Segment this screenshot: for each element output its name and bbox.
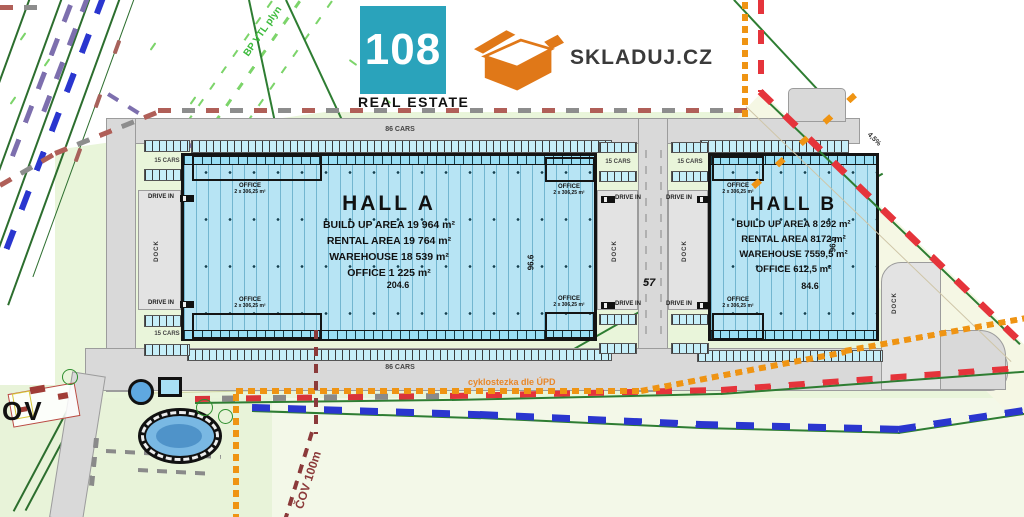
hall-b-width-dim: 84.6	[780, 281, 840, 291]
dock-label: DOCK	[892, 292, 898, 314]
truck-icon	[180, 195, 194, 202]
skladuj-box-icon	[474, 22, 564, 96]
hall-a-office-se	[545, 312, 595, 339]
parking-small	[671, 171, 709, 182]
logo-108-name: REAL ESTATE	[358, 94, 469, 110]
parking-row-north-a	[191, 140, 612, 153]
veg-dash	[20, 32, 27, 41]
office-area: 2 x 306,25 m²	[200, 304, 300, 310]
parking-small	[599, 314, 637, 325]
dock-label: DOCK	[682, 240, 688, 262]
parking-count-15: 15 CARS	[598, 159, 638, 165]
parking-small	[671, 343, 709, 354]
drive-in-label: DRIVE IN	[666, 195, 692, 201]
village-label: OV	[2, 396, 44, 427]
pond-water-deep	[156, 424, 202, 448]
truck-icon	[601, 302, 615, 309]
road-centerline	[660, 150, 662, 340]
logo-108-number: 108	[365, 25, 441, 75]
office-area: 2 x 306,25 m²	[533, 303, 605, 309]
skladuj-logo-text: SKLADUJ.CZ	[570, 46, 713, 70]
logo-108-square: 108	[360, 6, 446, 94]
hall-a-office-sw	[192, 313, 322, 339]
hall-b-office-nw	[712, 156, 764, 181]
tree-symbol	[62, 369, 78, 385]
parking-count-15: 15 CARS	[145, 158, 189, 164]
site-plan: OFFICE 2 x 306,25 m² OFFICE 2 x 306,25 m…	[0, 0, 1024, 517]
hall-a-depth-dim: 96.6	[527, 248, 536, 278]
office-label: OFFICE 2 x 306,25 m²	[533, 296, 605, 309]
hall-b-warehouse: WAREHOUSE 7559,5 m²	[708, 249, 879, 260]
hall-b-title: HALL B	[708, 194, 879, 216]
truck-icon	[180, 301, 194, 308]
water-basin-square	[158, 377, 182, 397]
parking-small	[599, 171, 637, 182]
hall-b-office-sw	[712, 313, 764, 340]
parking-count-south: 86 CARS	[370, 364, 430, 371]
hall-b-depth-dim: 96.6	[829, 230, 838, 260]
veg-dash	[10, 96, 17, 105]
hall-a-office-nw	[192, 155, 322, 181]
parking-small	[144, 344, 190, 356]
hall-a-rental: RENTAL AREA 19 764 m²	[181, 235, 597, 247]
parking-small	[671, 142, 709, 153]
office-area: 2 x 306,25 m²	[707, 304, 769, 310]
road-centerline	[645, 150, 647, 340]
hall-a-office-ne	[545, 157, 595, 182]
hall-a-title: HALL A	[181, 192, 597, 216]
truck-icon	[697, 302, 711, 309]
hall-b-office: OFFICE 612,5 m²	[708, 264, 879, 275]
drive-in-label: DRIVE IN	[148, 194, 174, 200]
utility-orange	[236, 388, 642, 394]
parking-small	[599, 343, 637, 354]
hall-a-width-dim: 204.6	[368, 280, 428, 290]
parking-small	[671, 314, 709, 325]
drive-in-label: DRIVE IN	[666, 301, 692, 307]
hall-a-buildup: BUILD UP AREA 19 964 m²	[181, 219, 597, 231]
office-label: OFFICE 2 x 306,25 m²	[200, 297, 300, 310]
utility-orange	[742, 2, 748, 120]
parking-row-south-a	[187, 349, 612, 361]
office-label: OFFICE 2 x 306,25 m²	[707, 297, 769, 310]
water-basin-circle	[128, 379, 154, 405]
dock-label: DOCK	[612, 240, 618, 262]
parking-small	[144, 140, 190, 152]
parking-small	[599, 142, 637, 153]
hall-b-buildup: BUILD UP AREA 8 292 m²	[708, 219, 879, 230]
dock-yard-hall-b-west	[668, 190, 708, 310]
drive-in-label: DRIVE IN	[615, 195, 641, 201]
hall-b-rental: RENTAL AREA 8172 m²	[708, 234, 879, 245]
parking-count-15: 15 CARS	[145, 331, 189, 337]
cycle-path-label: cyklostezka dle ÚPD	[468, 377, 556, 387]
truck-icon	[697, 196, 711, 203]
truck-icon	[601, 196, 615, 203]
drive-in-label: DRIVE IN	[148, 300, 174, 306]
utility-orange	[233, 394, 239, 517]
tree-symbol	[196, 399, 213, 416]
boundary-ne-vertical	[758, 0, 764, 92]
dock-label: DOCK	[154, 240, 160, 262]
road-entrance-stub	[788, 88, 846, 122]
gap-dimension: 57	[643, 277, 655, 289]
drive-in-label: DRIVE IN	[615, 301, 641, 307]
parking-count-north: 86 CARS	[370, 126, 430, 133]
parking-count-15: 15 CARS	[670, 159, 710, 165]
tree-symbol	[218, 409, 233, 424]
boundary-corner-dash	[0, 5, 46, 10]
cov-radius-line	[314, 330, 318, 434]
hall-b-info: HALL B BUILD UP AREA 8 292 m² RENTAL ARE…	[708, 194, 879, 275]
